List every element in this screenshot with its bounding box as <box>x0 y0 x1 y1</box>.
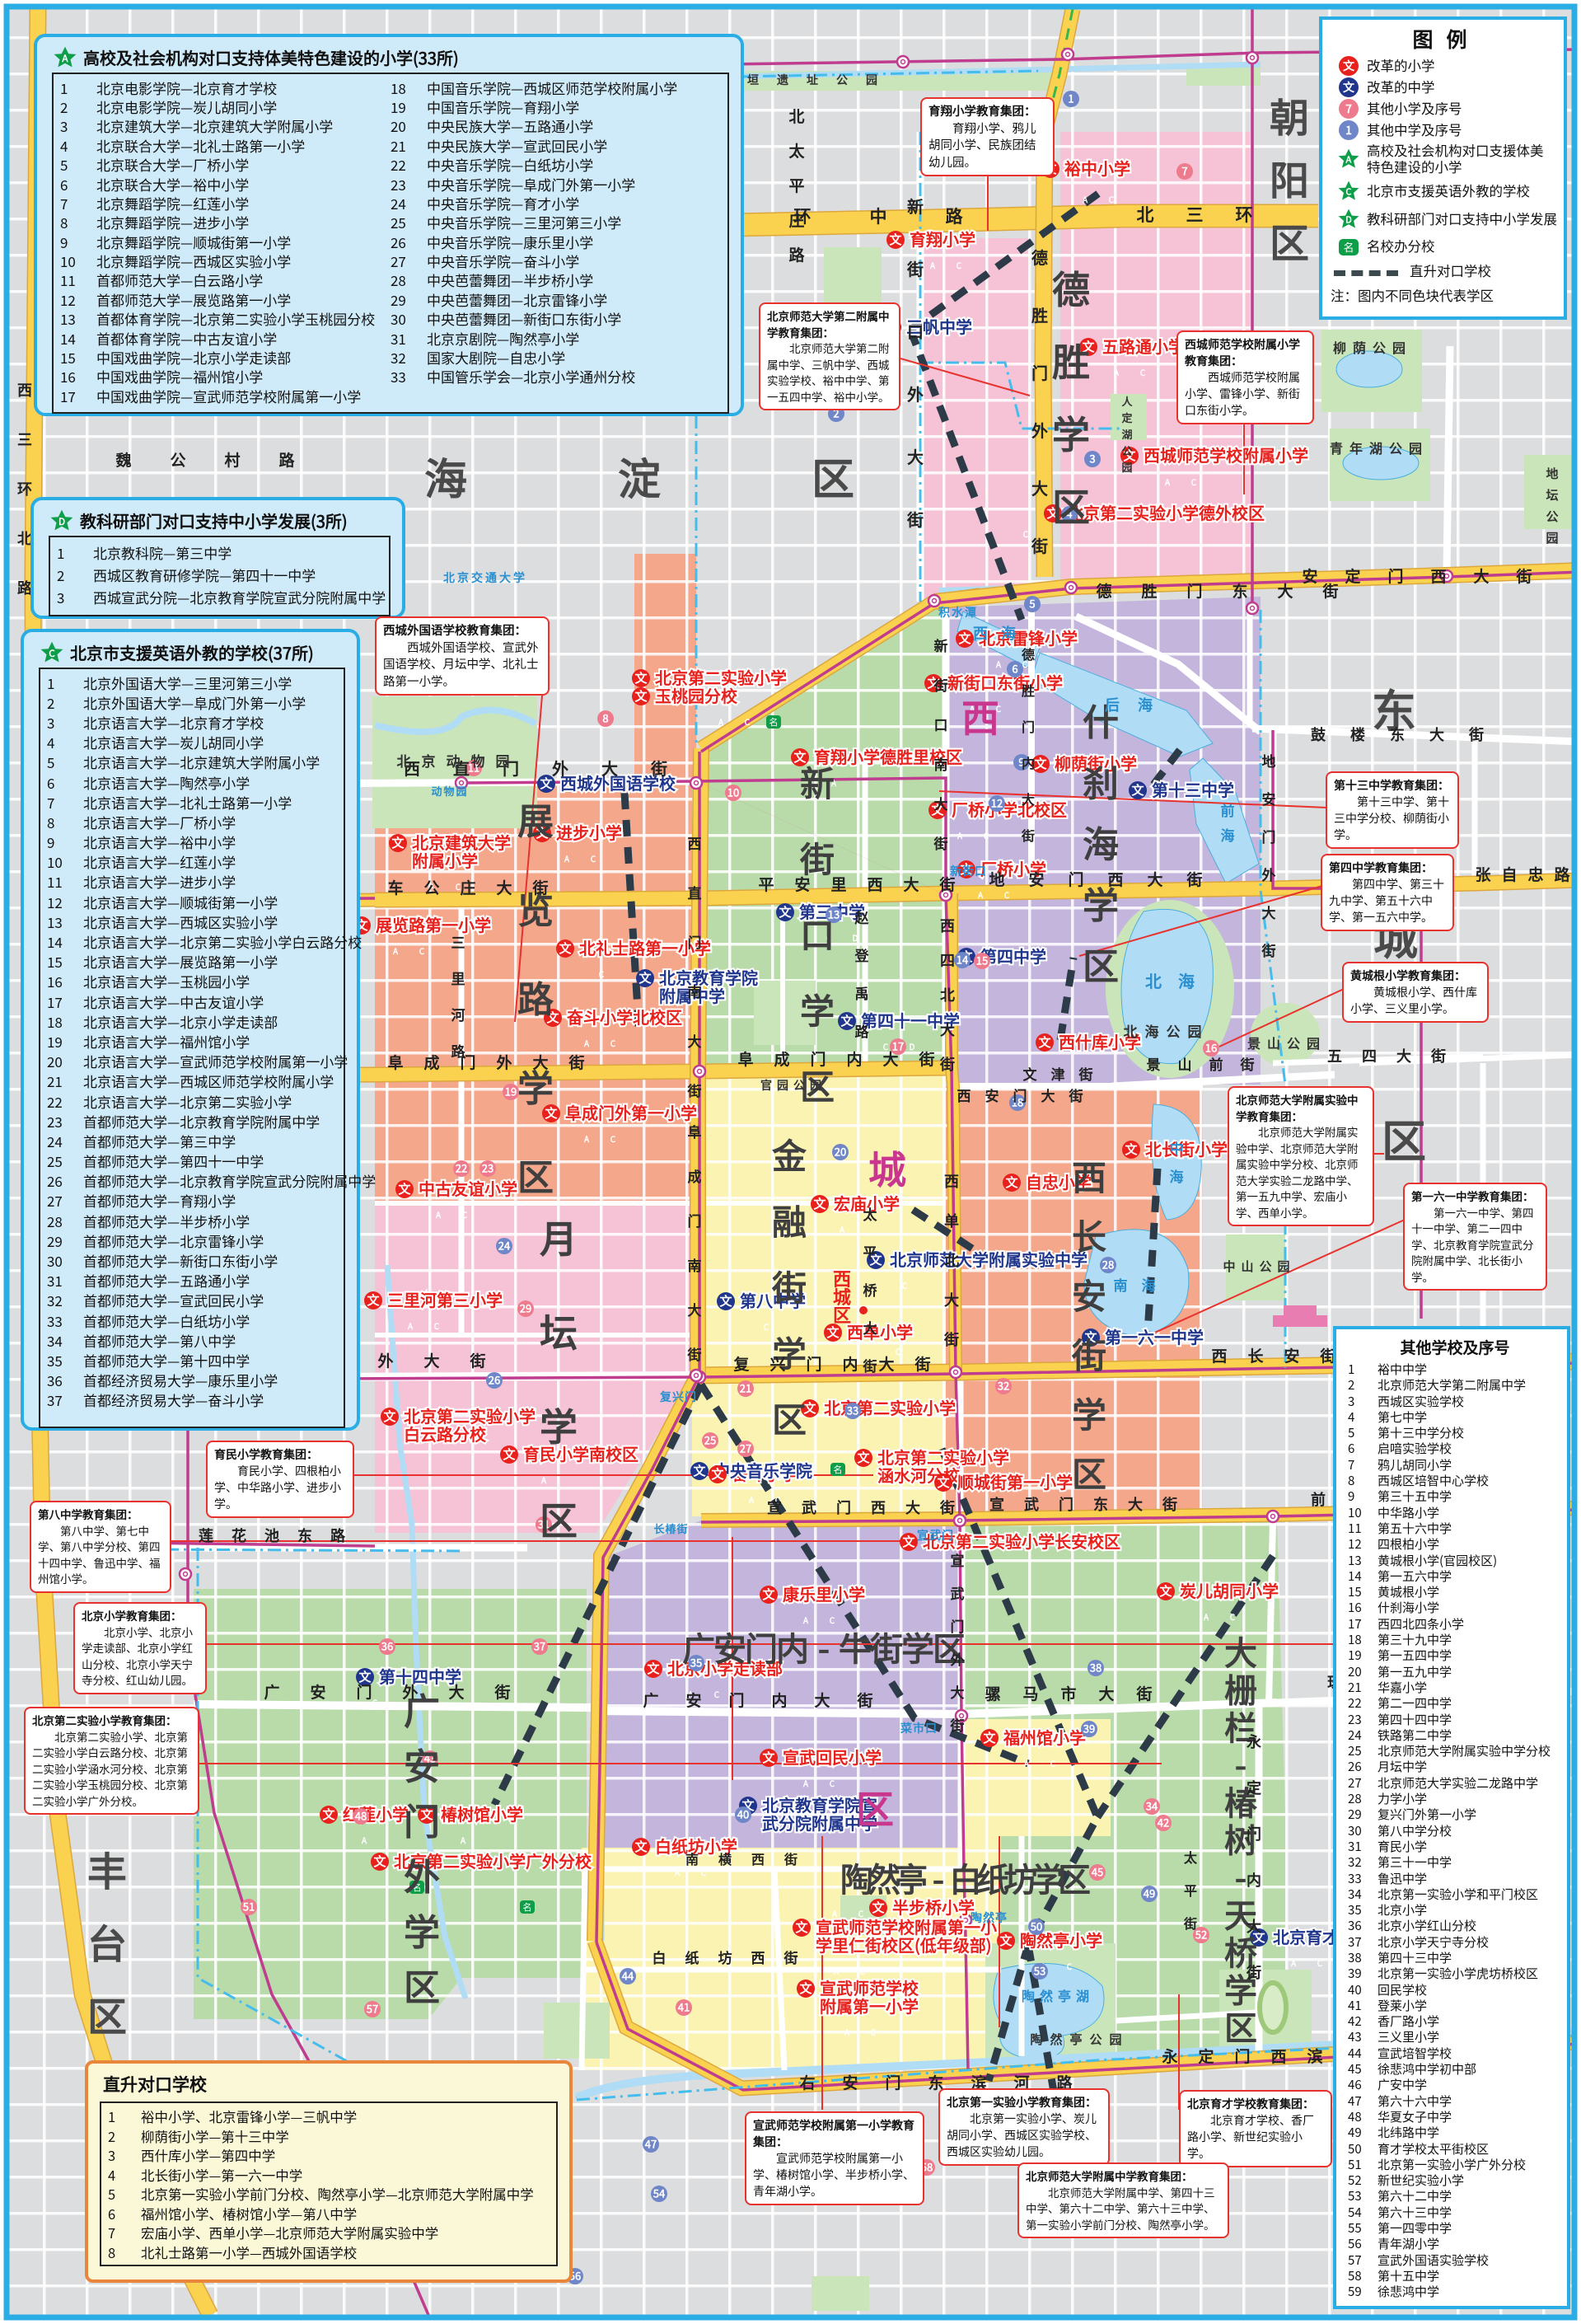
svg-text:展览路第一小学: 展览路第一小学 <box>376 912 491 936</box>
svg-text:地: 地 <box>989 868 1004 890</box>
svg-text:大: 大 <box>1247 1915 1261 1937</box>
svg-text:阜: 阜 <box>387 1051 403 1073</box>
svg-text:C: C <box>610 1037 616 1049</box>
svg-text:学里仁街校区(低年级部): 学里仁街校区(低年级部) <box>816 1933 992 1956</box>
svg-text:东: 东 <box>297 1525 312 1546</box>
svg-text:然: 然 <box>1040 1985 1053 2005</box>
svg-text:A: A <box>540 1474 547 1486</box>
svg-text:C: C <box>419 944 425 957</box>
svg-text:广: 广 <box>643 1689 658 1711</box>
svg-text:海: 海 <box>1145 1020 1159 1041</box>
svg-text:街: 街 <box>933 832 948 853</box>
svg-text:魏: 魏 <box>115 448 131 471</box>
svg-text:安: 安 <box>1028 868 1044 890</box>
svg-text:后: 后 <box>1105 694 1120 715</box>
svg-text:文: 文 <box>383 1408 396 1425</box>
svg-text:炭儿胡同小学: 炭儿胡同小学 <box>1180 1578 1279 1602</box>
svg-text:20: 20 <box>835 1144 846 1160</box>
svg-text:大: 大 <box>944 1289 959 1310</box>
svg-text:23: 23 <box>482 1160 493 1176</box>
svg-text:市: 市 <box>913 1720 924 1736</box>
svg-text:25: 25 <box>704 1432 716 1448</box>
svg-text:金: 金 <box>771 1129 807 1179</box>
svg-text:新: 新 <box>950 863 961 879</box>
svg-text:东: 东 <box>1232 579 1247 602</box>
svg-text:内: 内 <box>771 1689 787 1711</box>
svg-text:长: 长 <box>1247 1344 1264 1366</box>
svg-text:文: 文 <box>503 1445 516 1463</box>
svg-text:前: 前 <box>1209 1053 1223 1074</box>
svg-text:学: 学 <box>901 1623 934 1670</box>
svg-text:街: 街 <box>1261 939 1276 960</box>
svg-text:38: 38 <box>1090 1660 1102 1675</box>
svg-text:26: 26 <box>489 1372 500 1388</box>
svg-text:前: 前 <box>1311 1488 1326 1510</box>
svg-text:平: 平 <box>1184 1880 1197 1900</box>
svg-text:门: 门 <box>1186 579 1202 602</box>
svg-text:陶: 陶 <box>1022 1985 1035 2005</box>
svg-text:文: 文 <box>1159 1582 1172 1600</box>
svg-text:57: 57 <box>366 2001 378 2017</box>
svg-text:太: 太 <box>863 1203 878 1224</box>
svg-text:复: 复 <box>732 1352 750 1375</box>
svg-text:安: 安 <box>1284 1344 1299 1366</box>
svg-text:河: 河 <box>451 1004 465 1024</box>
svg-text:太: 太 <box>788 139 805 162</box>
svg-text:外: 外 <box>496 1051 512 1073</box>
svg-text:C: C <box>49 646 55 660</box>
svg-text:门: 门 <box>356 1680 372 1703</box>
svg-text:口: 口 <box>934 714 948 734</box>
svg-text:文: 文 <box>647 1660 660 1677</box>
svg-text:49: 49 <box>1143 1886 1155 1901</box>
svg-text:亭: 亭 <box>995 1909 1007 1926</box>
svg-text:路: 路 <box>330 1525 346 1546</box>
svg-text:文: 文 <box>779 903 792 921</box>
svg-text:文: 文 <box>1023 1063 1038 1084</box>
svg-text:骡: 骡 <box>985 1682 1000 1704</box>
svg-text:文: 文 <box>902 1533 915 1550</box>
svg-text:区: 区 <box>540 1492 578 1546</box>
svg-text:西: 西 <box>940 915 955 936</box>
svg-text:西: 西 <box>961 689 999 743</box>
svg-text:门: 门 <box>806 1352 821 1375</box>
svg-text:北京师范大学附属实验中学: 北京师范大学附属实验中学 <box>890 1247 1088 1271</box>
svg-text:海: 海 <box>424 445 467 507</box>
svg-text:A: A <box>1023 1757 1030 1769</box>
svg-text:市: 市 <box>1060 1682 1076 1704</box>
svg-text:北: 北 <box>944 1249 959 1271</box>
svg-text:A: A <box>802 1777 809 1789</box>
svg-text:区: 区 <box>1058 1853 1091 1901</box>
svg-text:路: 路 <box>855 1020 870 1041</box>
svg-text:新: 新 <box>934 635 948 655</box>
svg-text:安: 安 <box>685 1689 701 1711</box>
svg-text:亭: 亭 <box>1058 1985 1071 2005</box>
svg-text:C: C <box>591 852 596 864</box>
svg-text:三: 三 <box>17 429 32 450</box>
svg-text:文: 文 <box>634 1838 648 1855</box>
svg-text:遗: 遗 <box>776 72 788 88</box>
svg-text:禹: 禹 <box>855 982 869 1003</box>
svg-text:A: A <box>995 658 1002 670</box>
svg-text:门: 门 <box>1059 1493 1073 1515</box>
svg-text:51: 51 <box>242 1899 255 1914</box>
svg-text:淀: 淀 <box>618 445 661 507</box>
svg-text:红莲小学: 红莲小学 <box>343 1802 409 1825</box>
svg-text:园: 园 <box>1109 2031 1121 2048</box>
svg-text:区: 区 <box>1382 1105 1426 1170</box>
svg-text:山: 山 <box>1178 1053 1192 1074</box>
svg-text:中: 中 <box>1223 1258 1235 1275</box>
svg-text:公: 公 <box>1373 337 1386 357</box>
svg-text:四: 四 <box>940 949 955 971</box>
svg-text:大: 大 <box>863 1317 877 1338</box>
svg-text:附属第一小学: 附属第一小学 <box>820 1994 919 2017</box>
svg-text:名: 名 <box>769 715 779 729</box>
svg-text:北: 北 <box>1145 968 1162 992</box>
svg-text:内: 内 <box>846 1047 862 1070</box>
svg-text:兴: 兴 <box>672 1389 684 1405</box>
svg-text:C: C <box>714 1688 720 1700</box>
svg-text:马: 马 <box>1022 1682 1038 1704</box>
svg-text:44: 44 <box>621 1968 634 1984</box>
svg-text:A: A <box>1203 1610 1209 1623</box>
svg-text:湖: 湖 <box>1121 426 1132 442</box>
svg-text:西: 西 <box>867 873 882 895</box>
svg-text:宣: 宣 <box>989 1493 1004 1515</box>
svg-text:安: 安 <box>842 2071 858 2093</box>
svg-text:37: 37 <box>534 1638 545 1654</box>
svg-text:街: 街 <box>918 1047 934 1070</box>
svg-text:3: 3 <box>1089 451 1095 466</box>
svg-text:三: 三 <box>1186 202 1204 227</box>
svg-text:大: 大 <box>688 1030 702 1051</box>
svg-text:阜成门外第一小学: 阜成门外第一小学 <box>565 1100 697 1124</box>
svg-text:物: 物 <box>471 750 485 771</box>
svg-text:路: 路 <box>517 970 554 1023</box>
svg-text:平: 平 <box>863 1241 877 1262</box>
svg-text:西单小学: 西单小学 <box>847 1319 913 1343</box>
svg-text:学: 学 <box>800 984 835 1034</box>
svg-text:外: 外 <box>404 1848 440 1900</box>
svg-text:公: 公 <box>423 876 439 898</box>
svg-text:街: 街 <box>869 1623 903 1670</box>
svg-text:安: 安 <box>1262 788 1276 808</box>
svg-text:京: 京 <box>457 569 469 586</box>
svg-text:27: 27 <box>740 1441 751 1456</box>
svg-text:街: 街 <box>863 1355 877 1375</box>
svg-text:北京第二实验小学: 北京第二实验小学 <box>824 1395 956 1419</box>
svg-text:附属小学: 附属小学 <box>412 848 478 872</box>
svg-text:-: - <box>818 1623 830 1670</box>
svg-text:门: 门 <box>885 2071 900 2093</box>
svg-text:门: 门 <box>1022 716 1035 736</box>
svg-text:口: 口 <box>800 908 835 958</box>
svg-text:大: 大 <box>1098 1682 1114 1704</box>
svg-text:区: 区 <box>87 1984 127 2042</box>
svg-text:A: A <box>361 1834 367 1846</box>
svg-text:宣武回民小学: 宣武回民小学 <box>783 1745 882 1769</box>
svg-text:文: 文 <box>391 834 405 851</box>
svg-text:园: 园 <box>866 72 877 88</box>
svg-text:50: 50 <box>1030 1919 1042 1934</box>
svg-text:滨: 滨 <box>1307 2045 1322 2067</box>
svg-text:文: 文 <box>889 231 902 248</box>
svg-text:丰: 丰 <box>87 1839 127 1897</box>
svg-text:街: 街 <box>939 1497 955 1518</box>
svg-text:C: C <box>1346 185 1352 199</box>
svg-text:中: 中 <box>1170 1137 1184 1158</box>
svg-text:文: 文 <box>840 1012 854 1029</box>
svg-text:街: 街 <box>1162 1493 1177 1515</box>
svg-text:西: 西 <box>871 1497 886 1518</box>
svg-text:A: A <box>583 1132 590 1145</box>
svg-text:永: 永 <box>1246 1731 1261 1752</box>
svg-text:街: 街 <box>943 1328 959 1350</box>
svg-text:海: 海 <box>1178 968 1195 992</box>
svg-text:大: 大 <box>940 1019 955 1040</box>
svg-text:32: 32 <box>998 1378 1009 1394</box>
svg-text:文: 文 <box>937 1474 950 1491</box>
svg-text:安: 安 <box>1072 1269 1106 1319</box>
svg-text:西: 西 <box>1430 565 1446 587</box>
svg-text:大: 大 <box>448 1680 464 1703</box>
svg-text:玉桃园分校: 玉桃园分校 <box>655 683 738 707</box>
svg-text:南: 南 <box>685 1848 699 1868</box>
svg-text:菜: 菜 <box>900 1720 913 1736</box>
svg-text:年: 年 <box>1349 438 1363 457</box>
svg-text:A: A <box>407 1319 414 1332</box>
svg-text:西: 西 <box>1211 1344 1227 1366</box>
svg-text:车: 车 <box>387 876 403 898</box>
svg-text:C: C <box>1140 366 1146 378</box>
svg-text:忠: 忠 <box>1527 863 1543 885</box>
svg-text:街: 街 <box>531 876 548 898</box>
svg-text:C: C <box>858 1907 864 1919</box>
svg-text:A: A <box>460 1834 466 1846</box>
svg-text:A: A <box>844 2026 850 2038</box>
svg-text:公: 公 <box>1259 1258 1271 1275</box>
svg-text:口: 口 <box>925 1720 937 1736</box>
svg-text:45: 45 <box>1091 1864 1103 1880</box>
svg-text:文: 文 <box>693 1462 706 1479</box>
svg-text:C: C <box>434 1319 440 1332</box>
svg-text:村: 村 <box>224 448 240 471</box>
svg-text:公: 公 <box>1167 1020 1181 1041</box>
svg-text:中央音乐学院: 中央音乐学院 <box>713 1458 812 1482</box>
svg-text:A: A <box>583 1037 590 1049</box>
svg-text:大: 大 <box>1396 1045 1411 1066</box>
svg-text:大: 大 <box>951 1681 965 1702</box>
svg-text:区: 区 <box>1052 478 1090 532</box>
svg-text:陶: 陶 <box>1030 2031 1042 2048</box>
svg-text:西: 西 <box>973 622 988 644</box>
svg-text:西: 西 <box>751 1947 765 1967</box>
svg-text:武: 武 <box>802 1497 816 1518</box>
svg-text:文: 文 <box>958 630 971 647</box>
svg-text:东: 东 <box>1390 724 1405 745</box>
svg-text:C: C <box>372 1696 378 1708</box>
svg-text:宣: 宣 <box>951 1549 965 1570</box>
svg-text:街: 街 <box>961 863 974 879</box>
svg-text:A: A <box>1290 1956 1297 1969</box>
svg-text:12: 12 <box>991 795 1003 811</box>
svg-text:内: 内 <box>1022 752 1035 772</box>
svg-text:A: A <box>435 1208 442 1221</box>
svg-text:路: 路 <box>278 448 295 471</box>
svg-text:安: 安 <box>404 1737 440 1790</box>
svg-text:京: 京 <box>422 750 436 771</box>
svg-text:公: 公 <box>1389 438 1402 457</box>
svg-text:花: 花 <box>232 1525 246 1546</box>
svg-text:公: 公 <box>836 72 848 88</box>
svg-text:街: 街 <box>1135 1682 1152 1704</box>
svg-text:门: 门 <box>404 1792 440 1845</box>
svg-text:公: 公 <box>170 448 185 471</box>
svg-text:文: 文 <box>857 1449 870 1466</box>
svg-text:街: 街 <box>687 1080 702 1100</box>
svg-text:展: 展 <box>517 792 554 845</box>
svg-text:椿: 椿 <box>665 1520 676 1536</box>
svg-text:A: A <box>1345 153 1352 166</box>
svg-text:大: 大 <box>1041 1085 1055 1105</box>
svg-text:址: 址 <box>807 72 818 88</box>
svg-text:街: 街 <box>1183 1913 1197 1933</box>
svg-text:大: 大 <box>878 1352 894 1375</box>
svg-text:园: 园 <box>810 1077 821 1094</box>
svg-text:文: 文 <box>1005 1174 1018 1191</box>
svg-text:街: 街 <box>687 1343 702 1364</box>
svg-text:纸: 纸 <box>685 1947 699 1967</box>
svg-text:22: 22 <box>456 1160 467 1176</box>
svg-text:门: 门 <box>688 1210 702 1230</box>
svg-text:庄: 庄 <box>788 209 804 231</box>
svg-text:C: C <box>830 1777 835 1789</box>
svg-text:园: 园 <box>1277 1258 1289 1275</box>
svg-text:文: 文 <box>322 1806 335 1823</box>
svg-text:门: 门 <box>1013 1085 1027 1105</box>
svg-text:安: 安 <box>985 1085 999 1105</box>
svg-text:兴: 兴 <box>769 1352 785 1375</box>
svg-text:街: 街 <box>1078 1063 1093 1084</box>
svg-text:登: 登 <box>854 944 870 965</box>
svg-text:胜: 胜 <box>1031 302 1048 326</box>
svg-text:街: 街 <box>1515 565 1532 587</box>
svg-text:A: A <box>392 944 399 957</box>
svg-text:D: D <box>910 1040 915 1052</box>
svg-text:47: 47 <box>644 2136 657 2152</box>
svg-text:中古友谊小学: 中古友谊小学 <box>419 1176 517 1200</box>
svg-text:东: 东 <box>1093 1493 1108 1515</box>
svg-text:大: 大 <box>1262 902 1276 922</box>
svg-text:西: 西 <box>751 1848 765 1868</box>
svg-text:山: 山 <box>1241 1258 1253 1275</box>
svg-text:长: 长 <box>1072 1210 1106 1260</box>
svg-text:D: D <box>1345 213 1352 227</box>
svg-text:西: 西 <box>1270 2045 1286 2067</box>
svg-text:荫: 荫 <box>1353 337 1366 357</box>
svg-text:大: 大 <box>423 1349 439 1371</box>
svg-text:14: 14 <box>957 952 969 968</box>
svg-text:第十三中学: 第十三中学 <box>1152 777 1234 801</box>
svg-text:53: 53 <box>1033 1963 1045 1979</box>
svg-text:亭: 亭 <box>1069 2031 1082 2048</box>
svg-text:文: 文 <box>1125 1141 1138 1158</box>
svg-text:北: 北 <box>1124 1020 1138 1041</box>
svg-text:北长街小学: 北长街小学 <box>1145 1136 1228 1160</box>
svg-text:街: 街 <box>1430 1045 1446 1066</box>
svg-text:成: 成 <box>774 1047 789 1070</box>
svg-text:园: 园 <box>1188 1020 1202 1041</box>
svg-text:里: 里 <box>451 968 465 988</box>
svg-text:刹: 刹 <box>1083 754 1119 807</box>
svg-text:裕中小学: 裕中小学 <box>1064 156 1130 180</box>
svg-text:门: 门 <box>688 931 702 952</box>
svg-text:五: 五 <box>1327 1045 1342 1066</box>
svg-text:C: C <box>860 1965 866 1977</box>
svg-text:融: 融 <box>772 1195 807 1245</box>
svg-text:柳: 柳 <box>1333 337 1346 357</box>
svg-text:北: 北 <box>397 750 411 771</box>
svg-text:C: C <box>1050 1757 1056 1769</box>
svg-text:坛: 坛 <box>1546 486 1558 504</box>
svg-text:文: 文 <box>795 1919 808 1936</box>
svg-text:湖: 湖 <box>1076 1985 1089 2005</box>
svg-text:大: 大 <box>1429 724 1444 745</box>
svg-text:文: 文 <box>634 687 648 705</box>
svg-text:进步小学: 进步小学 <box>556 820 622 844</box>
svg-text:外: 外 <box>951 1648 965 1669</box>
svg-text:西: 西 <box>1072 1150 1106 1201</box>
svg-text:中: 中 <box>870 204 887 228</box>
svg-text:门: 门 <box>1234 2045 1250 2067</box>
svg-text:文: 文 <box>638 969 652 986</box>
svg-text:区: 区 <box>1083 937 1119 990</box>
svg-text:横: 横 <box>718 1848 732 1868</box>
svg-text:物: 物 <box>443 783 454 799</box>
svg-text:定: 定 <box>1198 2045 1214 2067</box>
svg-text:C: C <box>1317 1956 1323 1969</box>
svg-text:外: 外 <box>377 1349 393 1371</box>
svg-text:文: 文 <box>1038 1033 1051 1051</box>
svg-text:水: 水 <box>952 604 964 621</box>
svg-text:街: 街 <box>469 1349 485 1371</box>
svg-text:定: 定 <box>1247 1777 1261 1798</box>
svg-text:公: 公 <box>1287 1033 1300 1052</box>
svg-text:海: 海 <box>1142 1274 1156 1295</box>
svg-text:西: 西 <box>944 1170 959 1192</box>
svg-text:门: 门 <box>1387 565 1403 587</box>
svg-text:C: C <box>871 2026 877 2038</box>
svg-text:A: A <box>929 259 936 271</box>
svg-text:36: 36 <box>381 1638 393 1654</box>
svg-text:通: 通 <box>485 569 497 586</box>
svg-text:公: 公 <box>1546 508 1558 525</box>
svg-text:大: 大 <box>905 1497 920 1518</box>
svg-text:文: 文 <box>559 939 572 957</box>
svg-text:文: 文 <box>762 1586 775 1603</box>
svg-text:新: 新 <box>800 757 835 807</box>
svg-text:广: 广 <box>264 1680 279 1703</box>
svg-text:内: 内 <box>1247 1869 1261 1891</box>
svg-text:三里河第三小学: 三里河第三小学 <box>387 1287 503 1311</box>
svg-text:41: 41 <box>677 1999 690 2015</box>
svg-text:学: 学 <box>1052 405 1090 460</box>
svg-text:门: 门 <box>1031 360 1048 384</box>
svg-text:园: 园 <box>496 750 510 771</box>
svg-text:街: 街 <box>783 1848 798 1868</box>
